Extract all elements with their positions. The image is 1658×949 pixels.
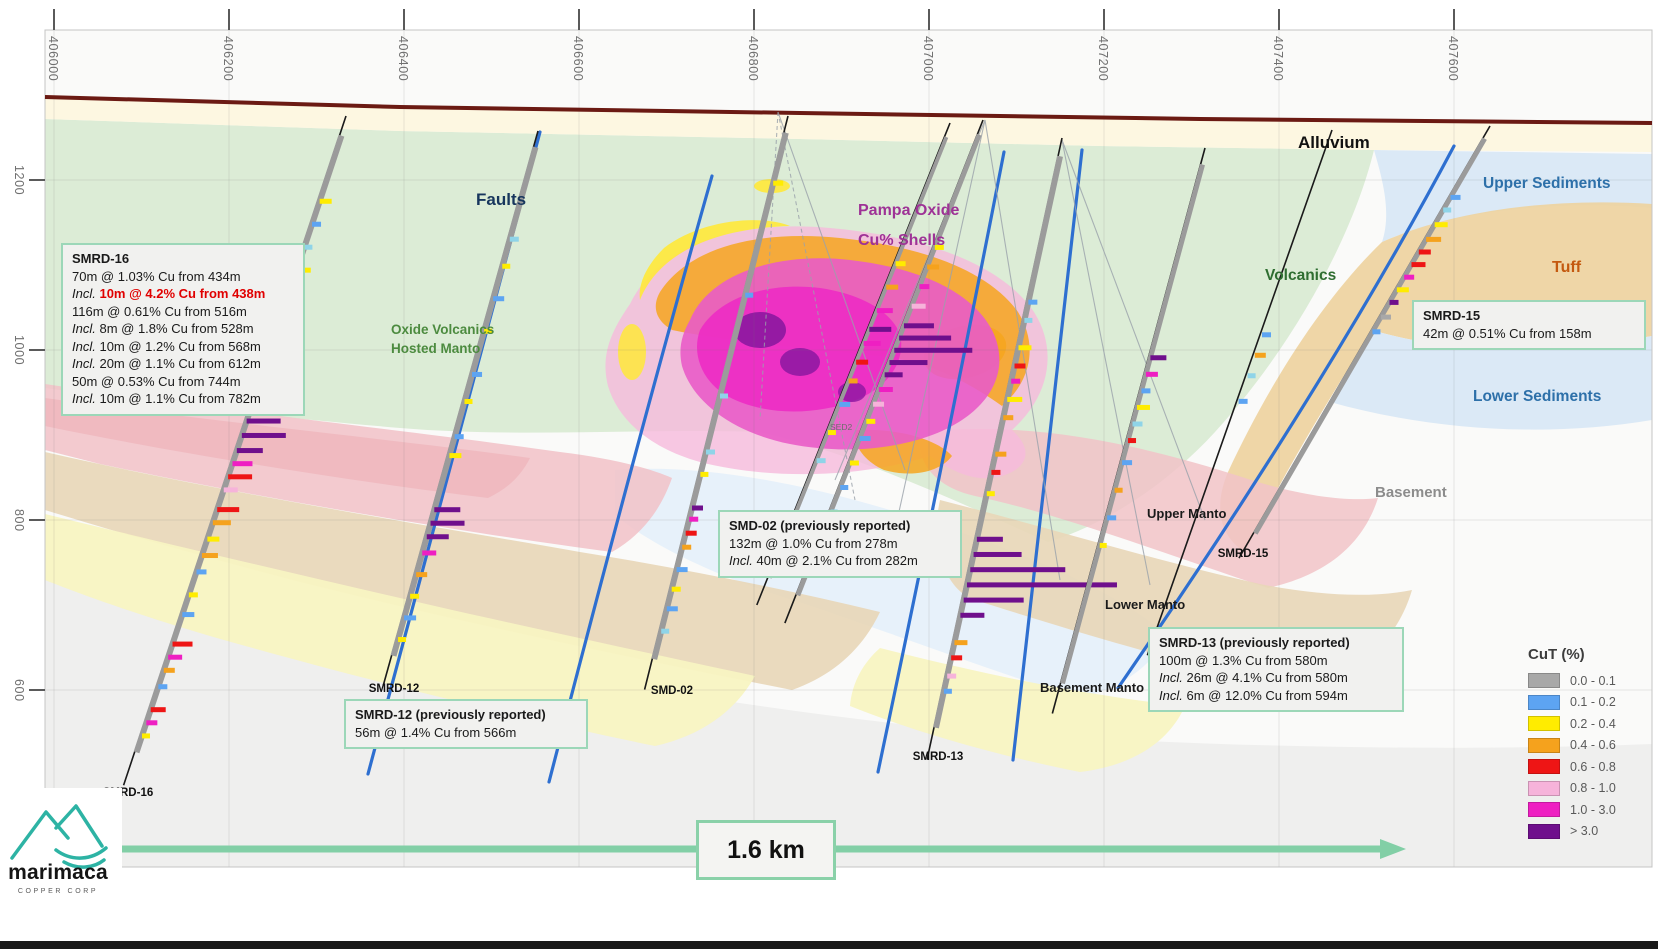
annotation-title: SMRD-12 (previously reported) — [355, 706, 577, 724]
legend-label: > 3.0 — [1570, 824, 1598, 838]
intercept-bar — [510, 237, 519, 242]
intercept-bar — [449, 453, 461, 458]
intercept-bar — [228, 474, 252, 479]
legend-label: 0.8 - 1.0 — [1570, 781, 1616, 795]
intercept-bar — [1122, 460, 1132, 465]
top-axis-label: 406400 — [396, 36, 410, 81]
left-axis-tick — [29, 519, 45, 521]
intercept-bar — [873, 402, 884, 407]
legend-swatch — [1528, 716, 1560, 731]
annotation-line: 42m @ 0.51% Cu from 158m — [1423, 325, 1635, 343]
annotation-title: SMRD-16 — [72, 250, 294, 268]
intercept-bar — [247, 419, 281, 424]
drill-hole-label: SMRD-13 — [913, 751, 963, 763]
legend-label: 0.1 - 0.2 — [1570, 695, 1616, 709]
intercept-bar — [1426, 237, 1441, 242]
intercept-bar — [1011, 379, 1020, 384]
intercept-bar — [1404, 275, 1414, 280]
drill-hole-label: SMRD-15 — [1218, 548, 1269, 560]
intercept-bar — [817, 458, 826, 463]
legend-swatch — [1528, 824, 1560, 839]
intercept-bar — [217, 507, 239, 512]
intercept-bar — [879, 387, 893, 392]
intercept-bar — [1150, 355, 1166, 360]
annotation-line: 56m @ 1.4% Cu from 566m — [355, 724, 577, 742]
intercept-bar — [899, 336, 951, 341]
legend-row: 0.6 - 0.8 — [1528, 759, 1616, 774]
intercept-bar — [970, 567, 1065, 572]
label-lower-sediments: Lower Sediments — [1473, 387, 1601, 406]
intercept-bar — [416, 572, 427, 577]
intercept-bar — [224, 487, 238, 492]
intercept-bar — [885, 372, 903, 377]
annotation-line: Incl. 10m @ 4.2% Cu from 438m — [72, 285, 294, 303]
intercept-bar — [196, 569, 206, 574]
intercept-bar — [720, 394, 728, 399]
drill-hole-label: SMRD-12 — [369, 683, 419, 695]
annotation-line: Incl. 26m @ 4.1% Cu from 580m — [1159, 669, 1393, 687]
intercept-bar — [304, 245, 312, 250]
annotation-box-smrd15: SMRD-1542m @ 0.51% Cu from 158m — [1412, 300, 1646, 350]
intercept-bar — [182, 612, 194, 617]
intercept-bar — [1128, 438, 1136, 443]
intercept-bar — [427, 534, 449, 539]
legend-row: 0.4 - 0.6 — [1528, 738, 1616, 753]
intercept-bar — [1443, 208, 1451, 213]
annotation-line: Incl. 8m @ 1.8% Cu from 528m — [72, 320, 294, 338]
intercept-bar — [502, 264, 510, 269]
annotation-line: Incl. 10m @ 1.1% Cu from 782m — [72, 390, 294, 408]
intercept-bar — [189, 592, 198, 597]
logo-company-subtext: COPPER CORP — [0, 888, 116, 895]
top-axis-tick — [1453, 9, 1455, 30]
legend-label: 0.6 - 0.8 — [1570, 760, 1616, 774]
intercept-bar — [866, 419, 875, 424]
annotation-line: 116m @ 0.61% Cu from 516m — [72, 303, 294, 321]
top-axis-label: 406800 — [746, 36, 760, 81]
intercept-bar — [977, 537, 1003, 542]
annotation-line: Incl. 40m @ 2.1% Cu from 282m — [729, 552, 951, 570]
intercept-bar — [840, 485, 848, 490]
intercept-bar — [987, 491, 995, 496]
intercept-bar — [404, 615, 416, 620]
intercept-bar — [158, 684, 167, 689]
legend-swatch — [1528, 738, 1560, 753]
intercept-bar — [1435, 222, 1448, 227]
intercept-bar — [919, 284, 929, 289]
label-faults: Faults — [476, 189, 526, 210]
legend-label: 0.4 - 0.6 — [1570, 738, 1616, 752]
intercept-bar — [692, 506, 703, 511]
intercept-bar — [954, 640, 967, 645]
annotation-line: Incl. 6m @ 12.0% Cu from 594m — [1159, 687, 1393, 705]
annotation-title: SMRD-15 — [1423, 307, 1635, 325]
intercept-bar — [1239, 399, 1248, 404]
intercept-bar — [869, 327, 891, 332]
annotation-line: 100m @ 1.3% Cu from 580m — [1159, 652, 1393, 670]
intercept-bar — [944, 689, 952, 694]
intercept-bar — [947, 674, 956, 679]
intercept-bar — [320, 199, 332, 204]
intercept-bar — [886, 285, 898, 290]
intercept-bar — [1411, 262, 1425, 267]
intercept-bar — [232, 461, 252, 466]
top-axis-tick — [928, 9, 930, 30]
legend-swatch — [1528, 673, 1560, 688]
label-lower-manto: Lower Manto — [1105, 597, 1185, 613]
annotation-box-smrd16: SMRD-1670m @ 1.03% Cu from 434mIncl. 10m… — [61, 243, 305, 416]
legend-row: 0.2 - 0.4 — [1528, 716, 1616, 731]
intercept-bar — [142, 733, 150, 738]
legend-cut-percent: CuT (%) 0.0 - 0.10.1 - 0.20.2 - 0.40.4 -… — [1528, 646, 1616, 845]
legend-swatch — [1528, 781, 1560, 796]
logo-company-name: marimaca — [0, 861, 116, 885]
intercept-bar — [991, 470, 1000, 475]
annotation-box-smd02: SMD-02 (previously reported)132m @ 1.0% … — [718, 510, 962, 578]
intercept-bar — [431, 521, 465, 526]
left-axis-elevation: 12001000800600 — [0, 0, 50, 949]
annotation-line: 70m @ 1.03% Cu from 434m — [72, 268, 294, 286]
top-axis-label: 407200 — [1096, 36, 1110, 81]
intercept-bar — [1018, 345, 1031, 350]
intercept-bar — [1003, 415, 1013, 420]
intercept-bar — [927, 265, 939, 270]
intercept-bar — [877, 308, 893, 313]
intercept-bar — [1372, 329, 1380, 334]
intercept-bar — [689, 517, 698, 522]
intercept-bar — [493, 296, 504, 301]
intercept-bar — [995, 452, 1006, 457]
intercept-bar — [894, 348, 972, 353]
top-axis-tick — [753, 9, 755, 30]
intercept-bar — [904, 323, 934, 328]
label-basement-manto: Basement Manto — [1040, 680, 1144, 696]
intercept-bar — [667, 606, 678, 611]
intercept-bar — [1262, 332, 1271, 337]
intercept-bar — [1007, 397, 1022, 402]
annotation-line: 132m @ 1.0% Cu from 278m — [729, 535, 951, 553]
label-alluvium: Alluvium — [1298, 132, 1370, 153]
legend-swatch — [1528, 802, 1560, 817]
intercept-bar — [960, 613, 984, 618]
intercept-bar — [839, 402, 850, 407]
legend-title: CuT (%) — [1528, 646, 1616, 663]
legend-row: 0.1 - 0.2 — [1528, 695, 1616, 710]
annotation-title: SMRD-13 (previously reported) — [1159, 634, 1393, 652]
intercept-bar — [1024, 318, 1032, 323]
top-axis-label: 406600 — [571, 36, 585, 81]
left-axis-tick — [29, 689, 45, 691]
top-axis-tick — [403, 9, 405, 30]
intercept-bar — [677, 567, 688, 572]
legend-row: 0.0 - 0.1 — [1528, 673, 1616, 688]
intercept-bar — [864, 341, 881, 346]
legend-label: 1.0 - 3.0 — [1570, 803, 1616, 817]
left-axis-tick — [29, 349, 45, 351]
section-graphics: SMRD-16SMRD-12SMD-02SMRD-13SMRD-15 — [0, 0, 1658, 949]
intercept-bar — [849, 378, 858, 383]
legend-swatch — [1528, 695, 1560, 710]
label-oxide-volcanics-hosted-manto: Oxide VolcanicsHosted Manto — [391, 320, 494, 358]
left-axis-label: 1000 — [12, 320, 26, 380]
intercept-bar — [434, 507, 460, 512]
label-upper-sediments: Upper Sediments — [1483, 174, 1610, 193]
annotation-box-smrd13: SMRD-13 (previously reported)100m @ 1.3%… — [1148, 627, 1404, 712]
intercept-bar — [207, 537, 219, 542]
intercept-bar — [967, 582, 1117, 587]
legend-label: 0.0 - 0.1 — [1570, 674, 1616, 688]
intercept-bar — [472, 372, 482, 377]
bottom-border-bar — [0, 941, 1658, 949]
annotation-line: Incl. 20m @ 1.1% Cu from 612m — [72, 355, 294, 373]
intercept-bar — [1141, 388, 1150, 393]
intercept-bar — [151, 707, 166, 712]
intercept-bar — [1381, 315, 1391, 320]
annotation-box-smrd12: SMRD-12 (previously reported)56m @ 1.4% … — [344, 699, 588, 749]
intercept-bar — [455, 434, 464, 439]
annotation-line: Incl. 10m @ 1.2% Cu from 568m — [72, 338, 294, 356]
intercept-bar — [889, 360, 927, 365]
top-axis-easting: 4060004062004064004066004068004070004072… — [0, 0, 1658, 100]
legend-swatch — [1528, 759, 1560, 774]
intercept-bar — [202, 553, 218, 558]
label-volcanics: Volcanics — [1265, 266, 1336, 285]
intercept-bar — [1100, 543, 1107, 548]
left-axis-label: 600 — [12, 660, 26, 720]
top-axis-tick — [578, 9, 580, 30]
intercept-bar — [1015, 364, 1026, 369]
intercept-bar — [745, 293, 753, 298]
intercept-bar — [1255, 353, 1266, 358]
intercept-bar — [1146, 372, 1158, 377]
intercept-bar — [1248, 373, 1256, 378]
intercept-bar — [312, 222, 321, 227]
legend-items: 0.0 - 0.10.1 - 0.20.2 - 0.40.4 - 0.60.6 … — [1528, 673, 1616, 839]
intercept-bar — [1028, 300, 1037, 305]
intercept-bar — [856, 360, 868, 365]
legend-row: > 3.0 — [1528, 824, 1616, 839]
intercept-bar — [773, 181, 783, 186]
intercept-bar — [1133, 422, 1143, 427]
intercept-bar — [422, 550, 436, 555]
intercept-bar — [1137, 405, 1150, 410]
left-axis-label: 1200 — [12, 150, 26, 210]
intercept-bar — [1115, 488, 1123, 493]
intercept-bar — [146, 720, 157, 725]
intercept-bar — [672, 587, 681, 592]
intercept-bar — [912, 304, 926, 309]
drill-hole-label: SMD-02 — [651, 685, 693, 697]
legend-label: 0.2 - 0.4 — [1570, 717, 1616, 731]
intercept-bar — [700, 472, 708, 477]
intercept-bar — [686, 531, 697, 536]
intercept-bar — [242, 433, 286, 438]
top-axis-tick — [1103, 9, 1105, 30]
intercept-bar — [974, 552, 1022, 557]
intercept-bar — [706, 450, 715, 455]
intercept-bar — [682, 545, 691, 550]
scale-bar-label: 1.6 km — [696, 820, 836, 880]
top-axis-tick — [228, 9, 230, 30]
top-axis-label: 407600 — [1446, 36, 1460, 81]
intercept-bar — [213, 520, 231, 525]
intercept-bar — [168, 655, 182, 660]
legend-row: 1.0 - 3.0 — [1528, 802, 1616, 817]
intercept-bar — [860, 436, 871, 441]
intercept-bar — [1107, 515, 1116, 520]
left-axis-tick — [29, 179, 45, 181]
top-axis-tick — [1278, 9, 1280, 30]
intercept-bar — [1419, 250, 1431, 255]
left-axis-label: 800 — [12, 490, 26, 550]
top-axis-label: 406200 — [221, 36, 235, 81]
label-basement: Basement — [1375, 484, 1447, 503]
intercept-bar — [661, 629, 669, 634]
label-upper-manto: Upper Manto — [1147, 506, 1226, 522]
intercept-bar — [410, 594, 419, 599]
top-axis-label: 407000 — [921, 36, 935, 81]
intercept-bar — [164, 668, 175, 673]
intercept-bar — [850, 461, 859, 466]
intercept-bar — [1397, 287, 1409, 292]
intercept-bar — [173, 642, 193, 647]
label-tuff: Tuff — [1552, 258, 1581, 278]
intercept-bar — [964, 598, 1024, 603]
intercept-bar — [1451, 195, 1461, 200]
intercept-bar — [237, 448, 263, 453]
intercept-bar — [465, 399, 473, 404]
top-axis-tick — [53, 9, 55, 30]
annotation-title: SMD-02 (previously reported) — [729, 517, 951, 535]
label-sed2: SED2 — [830, 422, 852, 433]
label-pampa-oxide-cu-shells: Pampa OxideCu% Shells — [858, 196, 959, 256]
legend-row: 0.8 - 1.0 — [1528, 781, 1616, 796]
annotation-line: 50m @ 0.53% Cu from 744m — [72, 373, 294, 391]
top-axis-label: 407400 — [1271, 36, 1285, 81]
intercept-bar — [951, 655, 962, 660]
intercept-bar — [896, 261, 906, 266]
intercept-bar — [1390, 300, 1399, 305]
intercept-bar — [398, 637, 406, 642]
cross-section-figure: SMRD-16SMRD-12SMD-02SMRD-13SMRD-15 40600… — [0, 0, 1658, 949]
